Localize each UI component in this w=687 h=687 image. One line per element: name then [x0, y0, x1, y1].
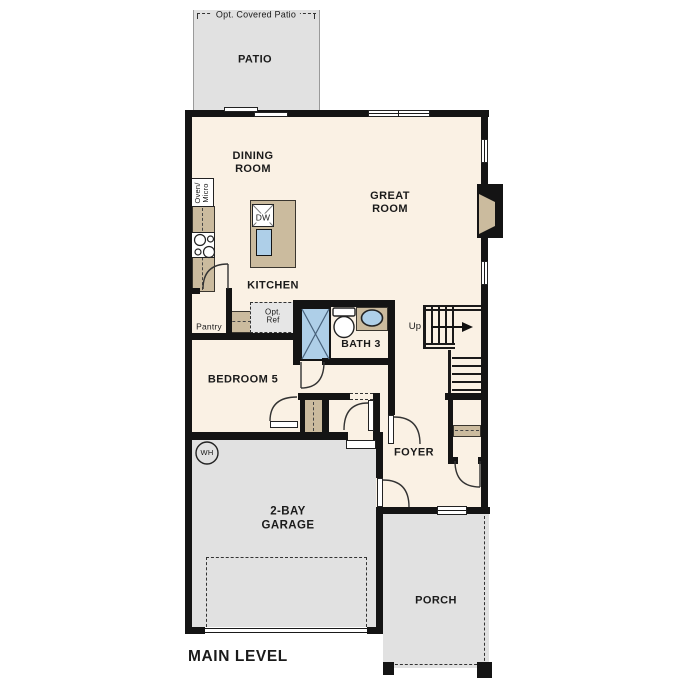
bath3-door-arc: [301, 362, 324, 388]
up-label: Up: [409, 322, 422, 332]
bath3-label: BATH 3: [341, 338, 381, 350]
dining-room-label: DINING ROOM: [221, 150, 285, 176]
toilet-tank: [333, 308, 355, 316]
wh-label: WH: [201, 449, 214, 457]
burner-2: [208, 236, 214, 242]
foyer-closet-door-arc: [455, 461, 480, 487]
dw-label: DW: [255, 214, 272, 223]
garage-foyer-door-arc: [383, 480, 409, 507]
patio-label: PATIO: [238, 54, 272, 67]
garage-entry-door-arc: [344, 403, 368, 430]
porch-label: PORCH: [415, 595, 457, 608]
main-level-title: MAIN LEVEL: [188, 648, 288, 666]
up-arrow-head: [462, 322, 473, 332]
garage-label: 2-BAY GARAGE: [253, 505, 323, 532]
burner-3: [195, 249, 201, 255]
opt-ref-label: Opt. Ref: [261, 309, 285, 326]
bath-sink-basin: [362, 310, 383, 326]
kitchen-label: KITCHEN: [247, 280, 299, 293]
great-room-label: GREAT ROOM: [362, 190, 418, 216]
bedroom5-label: BEDROOM 5: [208, 374, 278, 387]
pantry-door-arc: [203, 264, 228, 289]
burner-1: [195, 235, 206, 246]
hall-foyer-door-arc: [394, 417, 420, 444]
burner-4: [204, 247, 215, 258]
pantry-label: Pantry: [196, 323, 222, 332]
bedroom5-door-arc: [270, 397, 297, 421]
opt-covered-patio-label: Opt. Covered Patio: [212, 10, 300, 19]
foyer-label: FOYER: [394, 447, 434, 460]
floor-plan: Opt. Covered Patio PATIO DINING ROOM GRE…: [0, 0, 687, 687]
oven-micro-label: Oven/ Micro: [194, 178, 210, 208]
toilet-bowl: [334, 317, 354, 338]
